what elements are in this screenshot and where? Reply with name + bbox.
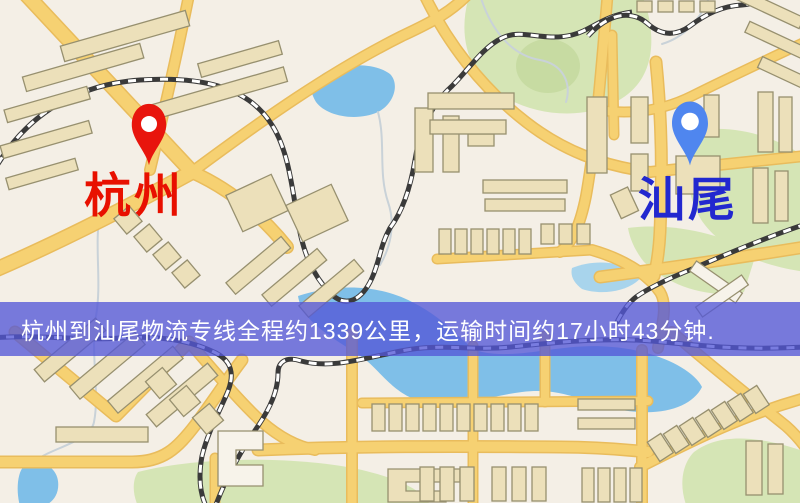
map-canvas [0, 0, 800, 503]
origin-city-label: 杭州 [84, 174, 184, 221]
destination-city-label: 汕尾 [638, 178, 738, 225]
route-info-banner: 杭州到汕尾物流专线全程约1339公里，运输时间约17小时43分钟. [0, 302, 800, 356]
origin-pin-icon[interactable] [126, 102, 172, 167]
map-screenshot: 杭州 汕尾 杭州到汕尾物流专线全程约1339公里，运输时间约17小时43分钟. [0, 0, 800, 503]
destination-pin-icon[interactable] [666, 98, 714, 169]
route-info-text: 杭州到汕尾物流专线全程约1339公里，运输时间约17小时43分钟. [21, 312, 715, 346]
